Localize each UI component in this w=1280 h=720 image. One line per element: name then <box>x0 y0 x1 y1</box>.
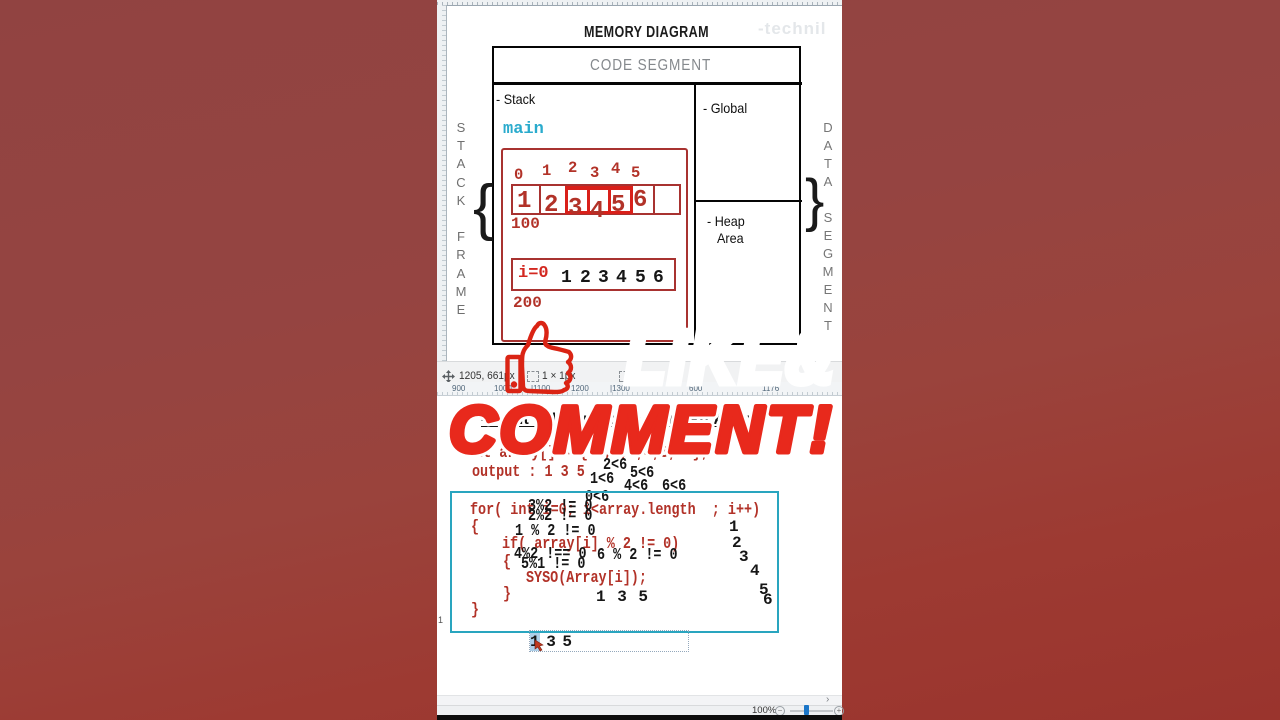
svg-text:COMMENT!: COMMENT! <box>449 393 834 465</box>
